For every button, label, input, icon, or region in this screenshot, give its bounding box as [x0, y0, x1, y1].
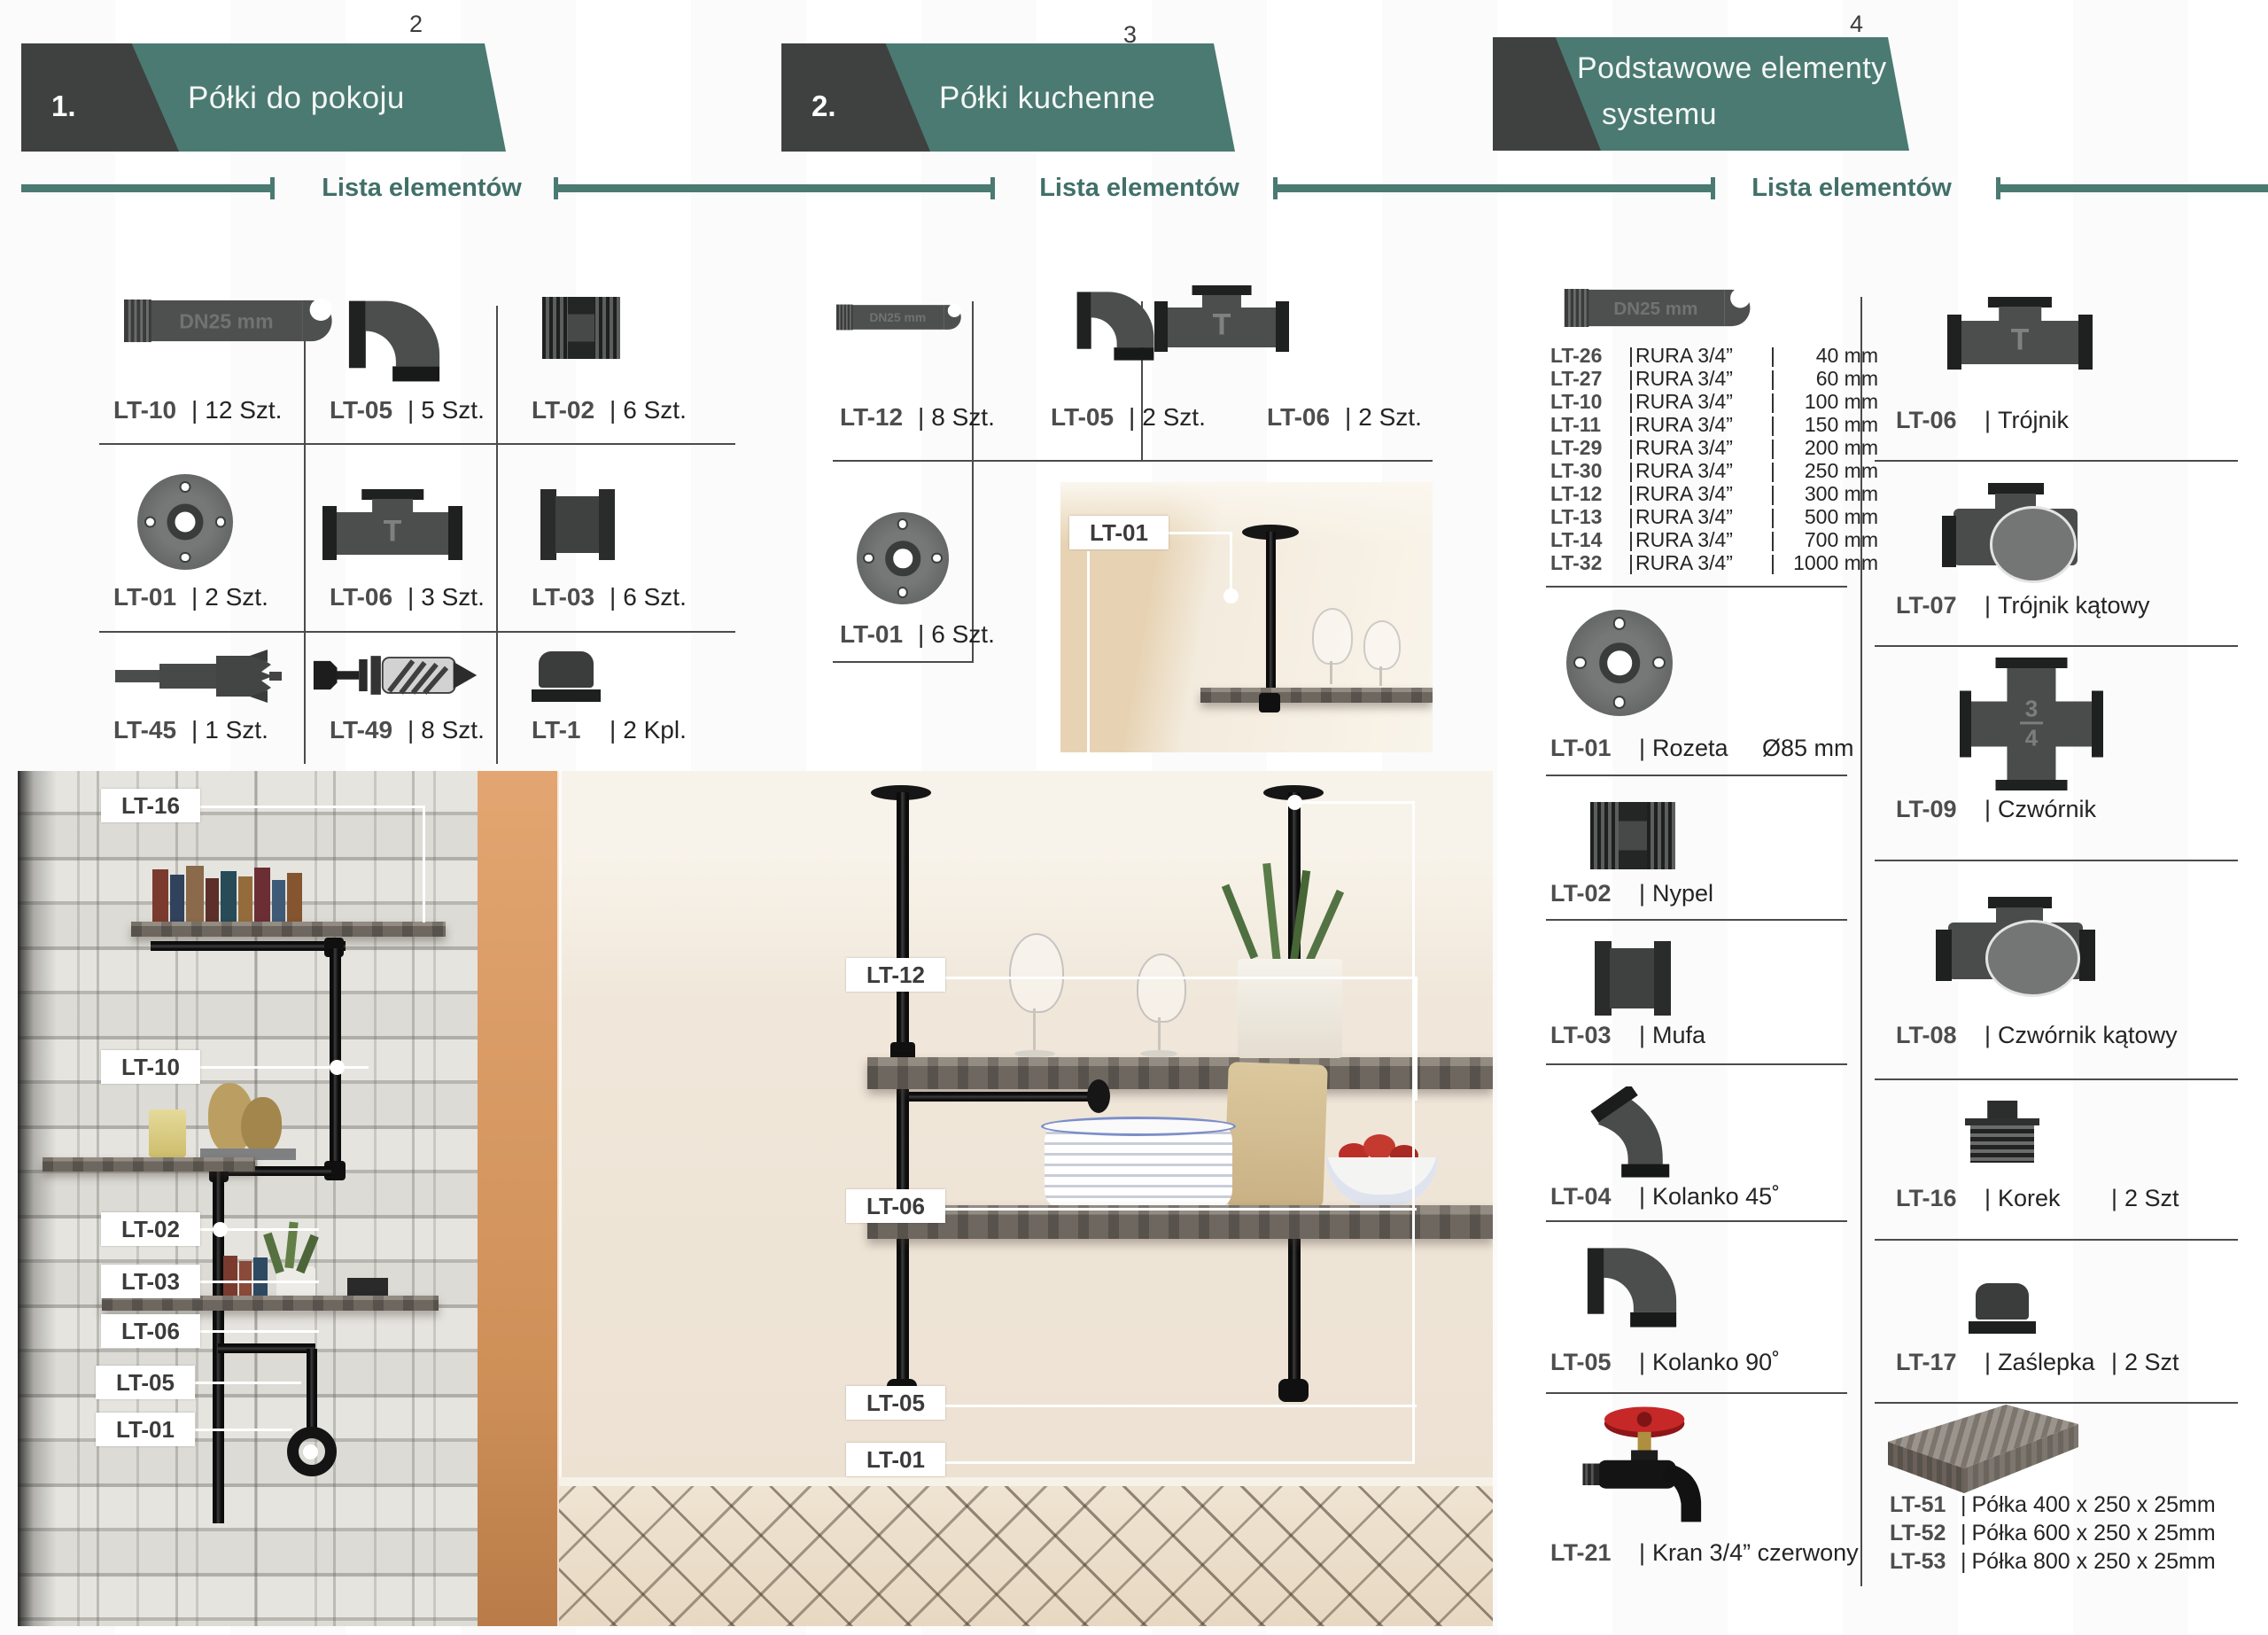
section2-number: 2.	[812, 90, 836, 123]
shelf-board	[43, 1157, 255, 1172]
angle-tee-icon	[1942, 483, 2082, 591]
row-divider	[1875, 860, 2238, 861]
coupler-icon	[1595, 941, 1671, 1016]
part-label: LT-06|Trójnik	[1896, 407, 2069, 434]
shelf-size-row: LT-51|Półka 400 x 250 x 25mm	[1890, 1492, 2216, 1521]
plug-icon	[1965, 1101, 2039, 1163]
svg-text:DN25 mm: DN25 mm	[869, 310, 926, 324]
svg-text:DN25 mm: DN25 mm	[179, 310, 273, 333]
pipe-icon: DN25 mm	[124, 292, 346, 349]
leader-line	[200, 1330, 319, 1333]
baseboard	[559, 1477, 1493, 1486]
row-divider	[1875, 1078, 2238, 1080]
rura-row: LT-14|RURA 3/4”|700 mm	[1550, 528, 1880, 551]
row-divider	[1546, 1392, 1847, 1394]
rura-row: LT-12|RURA 3/4”|300 mm	[1550, 482, 1880, 505]
part-label: LT-01|2 Szt.	[113, 583, 268, 611]
tee-icon: T	[1947, 297, 2093, 370]
row-divider	[1546, 586, 1847, 588]
part-label: LT-08|Czwórnik kątowy	[1896, 1022, 2178, 1049]
leader-line	[1412, 801, 1415, 1464]
rura-row: LT-10|RURA 3/4”|100 mm	[1550, 390, 1880, 413]
leader-dot	[1223, 588, 1239, 603]
coupler-icon	[540, 489, 615, 560]
pipe	[1266, 532, 1276, 697]
planter	[1238, 959, 1342, 1058]
part-label: LT-04|Kolanko 45˚	[1550, 1183, 1780, 1211]
nipple-icon	[1590, 802, 1675, 869]
leader-dot	[1287, 795, 1302, 810]
divider-bar	[1273, 184, 1715, 192]
photo-label: LT-16	[101, 789, 200, 822]
grid-line	[972, 301, 974, 663]
row-divider	[1546, 1063, 1847, 1065]
drill-bit-icon	[115, 649, 319, 704]
shelf-board	[1200, 688, 1433, 703]
row-divider	[1875, 645, 2238, 647]
row-divider	[1875, 1239, 2238, 1241]
glass-stem	[1033, 1008, 1036, 1053]
leader-line	[942, 977, 1417, 979]
elbow-90-icon	[347, 297, 441, 385]
part-label: LT-17|Zaślepka|2 Szt	[1896, 1349, 2179, 1376]
end-cap-icon	[532, 651, 601, 703]
glass-foot	[1014, 1050, 1055, 1057]
flange-icon	[857, 512, 949, 604]
pipe	[897, 792, 909, 1391]
rura-row: LT-26|RURA 3/4”|40 mm	[1550, 344, 1880, 367]
shelf-board	[131, 922, 446, 937]
svg-text:DN25 mm: DN25 mm	[1613, 299, 1697, 319]
photo-label: LT-03	[101, 1265, 200, 1298]
rura-list: LT-26|RURA 3/4”|40 mm LT-27|RURA 3/4”|60…	[1550, 344, 1880, 574]
pipe	[307, 1349, 317, 1434]
pipe	[330, 948, 341, 1170]
part-label: LT-09|Czwórnik	[1896, 796, 2096, 823]
pipe	[151, 941, 346, 951]
section1-number: 1.	[51, 90, 76, 123]
shelf-board-photo	[1888, 1405, 2078, 1493]
shelf-size-row: LT-52|Półka 600 x 250 x 25mm	[1890, 1521, 2216, 1549]
leader-line	[1165, 532, 1232, 534]
kitchen-inset-photo: LT-01	[1060, 482, 1433, 752]
plant-sprig	[1222, 884, 1258, 960]
leader-line	[423, 806, 425, 923]
wine-glass	[1137, 954, 1186, 1023]
pipe-icon: DN25 mm	[1559, 284, 1767, 332]
section1-header: 1. Półki do pokoju	[21, 43, 506, 152]
leader-line	[200, 806, 425, 808]
leader-line	[942, 1405, 1417, 1407]
photo-label: LT-02	[101, 1212, 200, 1246]
grid-line	[99, 443, 735, 445]
part-label: LT-21|Kran 3/4” czerwony	[1550, 1539, 1859, 1567]
glass-stem	[1379, 666, 1382, 686]
nipple-icon	[542, 297, 620, 359]
elbow-fitting	[1278, 1379, 1309, 1402]
tee-icon: T	[322, 489, 462, 560]
page-number-3: 4	[1850, 11, 1863, 38]
part-label: LT-05|Kolanko 90˚	[1550, 1349, 1780, 1376]
part-label: LT-06|2 Szt.	[1267, 403, 1422, 432]
plant-sprig	[1306, 890, 1344, 962]
part-label: LT-05|2 Szt.	[1051, 403, 1206, 432]
part-label: LT-12|8 Szt.	[840, 403, 995, 432]
photo-label: LT-06	[101, 1314, 200, 1348]
list-label-1: Lista elementów	[307, 174, 537, 203]
grid-line	[496, 306, 498, 764]
part-label: LT-05|5 Szt.	[330, 396, 485, 424]
plate-stack	[1045, 1124, 1232, 1207]
section3-header: Podstawowe elementy systemu	[1493, 37, 1909, 151]
photo-label: LT-06	[846, 1189, 945, 1223]
shelf-size-list: LT-51|Półka 400 x 250 x 25mm LT-52|Półka…	[1890, 1492, 2216, 1577]
leader-line	[1087, 551, 1090, 752]
orange-wall	[478, 771, 559, 1626]
row-divider	[1546, 775, 1847, 776]
section2-header: 2. Półki kuchenne	[781, 43, 1235, 152]
room-shelf-photo: LT-16 LT-10 LT-02 LT-03 LT-06 LT-05 LT-0…	[18, 771, 478, 1626]
cutting-board	[1223, 1062, 1328, 1209]
leader-dot	[303, 1444, 318, 1460]
catalog-page: 2 3 4 1. Półki do pokoju 2. Półki kuchen…	[0, 0, 2268, 1635]
leader-line	[1230, 532, 1232, 592]
support-pipe	[909, 1092, 1095, 1102]
part-label: LT-49|8 Szt.	[330, 716, 485, 744]
leader-line	[195, 1429, 292, 1431]
divider-bar	[554, 184, 995, 192]
grid-line	[833, 460, 1433, 462]
section3-title-line2: systemu	[1602, 97, 1717, 132]
elbow-90-icon	[1076, 290, 1155, 362]
divider-bar	[1996, 184, 2268, 192]
screw-anchor-icon	[312, 650, 480, 701]
photo-label: LT-01	[846, 1443, 945, 1476]
rura-row: LT-29|RURA 3/4”|200 mm	[1550, 436, 1880, 459]
part-label: LT-16|Korek|2 Szt	[1896, 1185, 2179, 1212]
divider-bar	[21, 184, 275, 192]
photo-label: LT-05	[96, 1366, 195, 1399]
flange-icon	[1566, 610, 1673, 716]
glass-foot	[1140, 1050, 1177, 1057]
leader-line	[942, 1208, 1417, 1211]
photo-label: LT-01	[96, 1413, 195, 1446]
elbow-fitting	[1259, 693, 1280, 712]
leader-line	[200, 1281, 319, 1283]
page-number-1: 2	[409, 11, 423, 38]
tee-icon: T	[1154, 285, 1289, 352]
grid-line	[99, 631, 735, 633]
leader-line	[1415, 977, 1417, 1101]
herringbone-floor	[559, 1484, 1493, 1626]
part-label: LT-03|6 Szt.	[532, 583, 687, 611]
part-label: LT-02|6 Szt.	[532, 396, 687, 424]
flange-icon	[137, 474, 233, 570]
elbow-45-icon	[1579, 1086, 1681, 1184]
photo-label: LT-05	[846, 1386, 945, 1420]
pipe-icon: DN25 mm	[836, 300, 969, 335]
plant-sprig	[1262, 863, 1281, 962]
section3-title-line1: Podstawowe elementy	[1577, 51, 1887, 86]
section1-title: Półki do pokoju	[188, 81, 405, 116]
grid-line	[833, 661, 972, 663]
faucet-icon	[1579, 1400, 1713, 1542]
list-label-3: Lista elementów	[1736, 174, 1967, 203]
wall-flange	[1087, 1079, 1110, 1113]
row-divider	[1546, 1220, 1847, 1222]
wine-glass	[1312, 608, 1353, 665]
part-label: LT-02|Nypel	[1550, 880, 1713, 907]
part-label: LT-01|RozetaØ85 mm	[1550, 735, 1854, 762]
rura-row: LT-32|RURA 3/4”|1000 mm	[1550, 551, 1880, 574]
shelf-size-row: LT-53|Półka 800 x 250 x 25mm	[1890, 1549, 2216, 1577]
photo-label: LT-12	[846, 958, 945, 992]
candle	[149, 1109, 186, 1157]
rura-row: LT-27|RURA 3/4”|60 mm	[1550, 367, 1880, 390]
list-label-2: Lista elementów	[1024, 174, 1254, 203]
part-label: LT-01|6 Szt.	[840, 620, 995, 649]
cross-icon: 34	[1960, 658, 2103, 790]
shelf-board	[867, 1057, 1493, 1089]
kitchen-shelf-photo: LT-12 LT-06 LT-05 LT-01	[478, 771, 1493, 1626]
part-label: LT-1|2 Kpl.	[532, 716, 687, 744]
pipe	[218, 1343, 315, 1353]
part-label: LT-45|1 Szt.	[113, 716, 268, 744]
wine-glass	[1009, 933, 1064, 1013]
row-divider	[1546, 919, 1847, 921]
section2-title: Półki kuchenne	[939, 81, 1155, 116]
end-cap-icon	[1969, 1283, 2036, 1335]
elbow-90-icon	[1586, 1245, 1678, 1330]
part-label: LT-03|Mufa	[1550, 1022, 1705, 1049]
photo-label: LT-10	[101, 1050, 200, 1084]
wine-glass	[1363, 620, 1401, 670]
bowl	[1326, 1157, 1438, 1207]
rura-row: LT-30|RURA 3/4”|250 mm	[1550, 459, 1880, 482]
leader-dot	[330, 1060, 345, 1075]
angle-cross-icon	[1936, 897, 2095, 1005]
top-plate	[1041, 1117, 1236, 1136]
part-label: LT-07|Trójnik kątowy	[1896, 592, 2150, 619]
glass-stem	[1330, 661, 1332, 684]
rura-row: LT-13|RURA 3/4”|500 mm	[1550, 505, 1880, 528]
row-divider	[1875, 1402, 2238, 1404]
leader-line	[1301, 801, 1415, 804]
leader-dot	[213, 1222, 228, 1237]
part-label: LT-06|3 Szt.	[330, 583, 485, 611]
leader-line	[942, 1461, 1415, 1464]
leader-line	[195, 1382, 301, 1384]
row-divider	[1875, 460, 2238, 462]
part-label: LT-10|12 Szt.	[113, 396, 282, 424]
gold-sculpture	[241, 1097, 282, 1154]
pipe	[213, 1311, 224, 1523]
photo-label: LT-01	[1069, 516, 1169, 549]
rura-row: LT-11|RURA 3/4”|150 mm	[1550, 413, 1880, 436]
glass-stem	[1158, 1017, 1161, 1053]
